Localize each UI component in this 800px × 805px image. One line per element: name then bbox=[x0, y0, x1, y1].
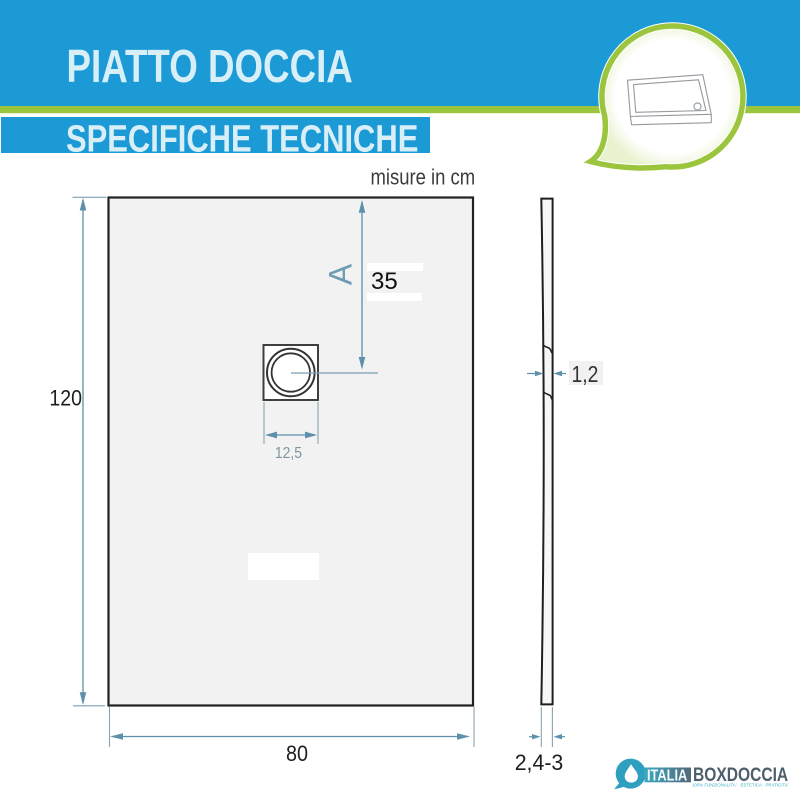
svg-text:SPECIFICHE TECNICHE: SPECIFICHE TECNICHE bbox=[66, 119, 418, 160]
svg-text:A: A bbox=[323, 263, 359, 285]
svg-text:PIATTO DOCCIA: PIATTO DOCCIA bbox=[67, 40, 353, 92]
svg-text:1,2: 1,2 bbox=[572, 363, 599, 388]
svg-text:35: 35 bbox=[371, 268, 398, 295]
svg-text:12,5: 12,5 bbox=[275, 445, 302, 462]
svg-text:2,4-3: 2,4-3 bbox=[515, 750, 564, 775]
svg-text:misure in cm: misure in cm bbox=[371, 166, 476, 190]
svg-text:120: 120 bbox=[49, 386, 82, 411]
svg-text:ITALIA: ITALIA bbox=[647, 767, 688, 785]
svg-text:80: 80 bbox=[286, 742, 308, 766]
svg-text:100% FUNZIONALITA' · ESTETICA: 100% FUNZIONALITA' · ESTETICA · PRATICIT… bbox=[692, 782, 789, 787]
